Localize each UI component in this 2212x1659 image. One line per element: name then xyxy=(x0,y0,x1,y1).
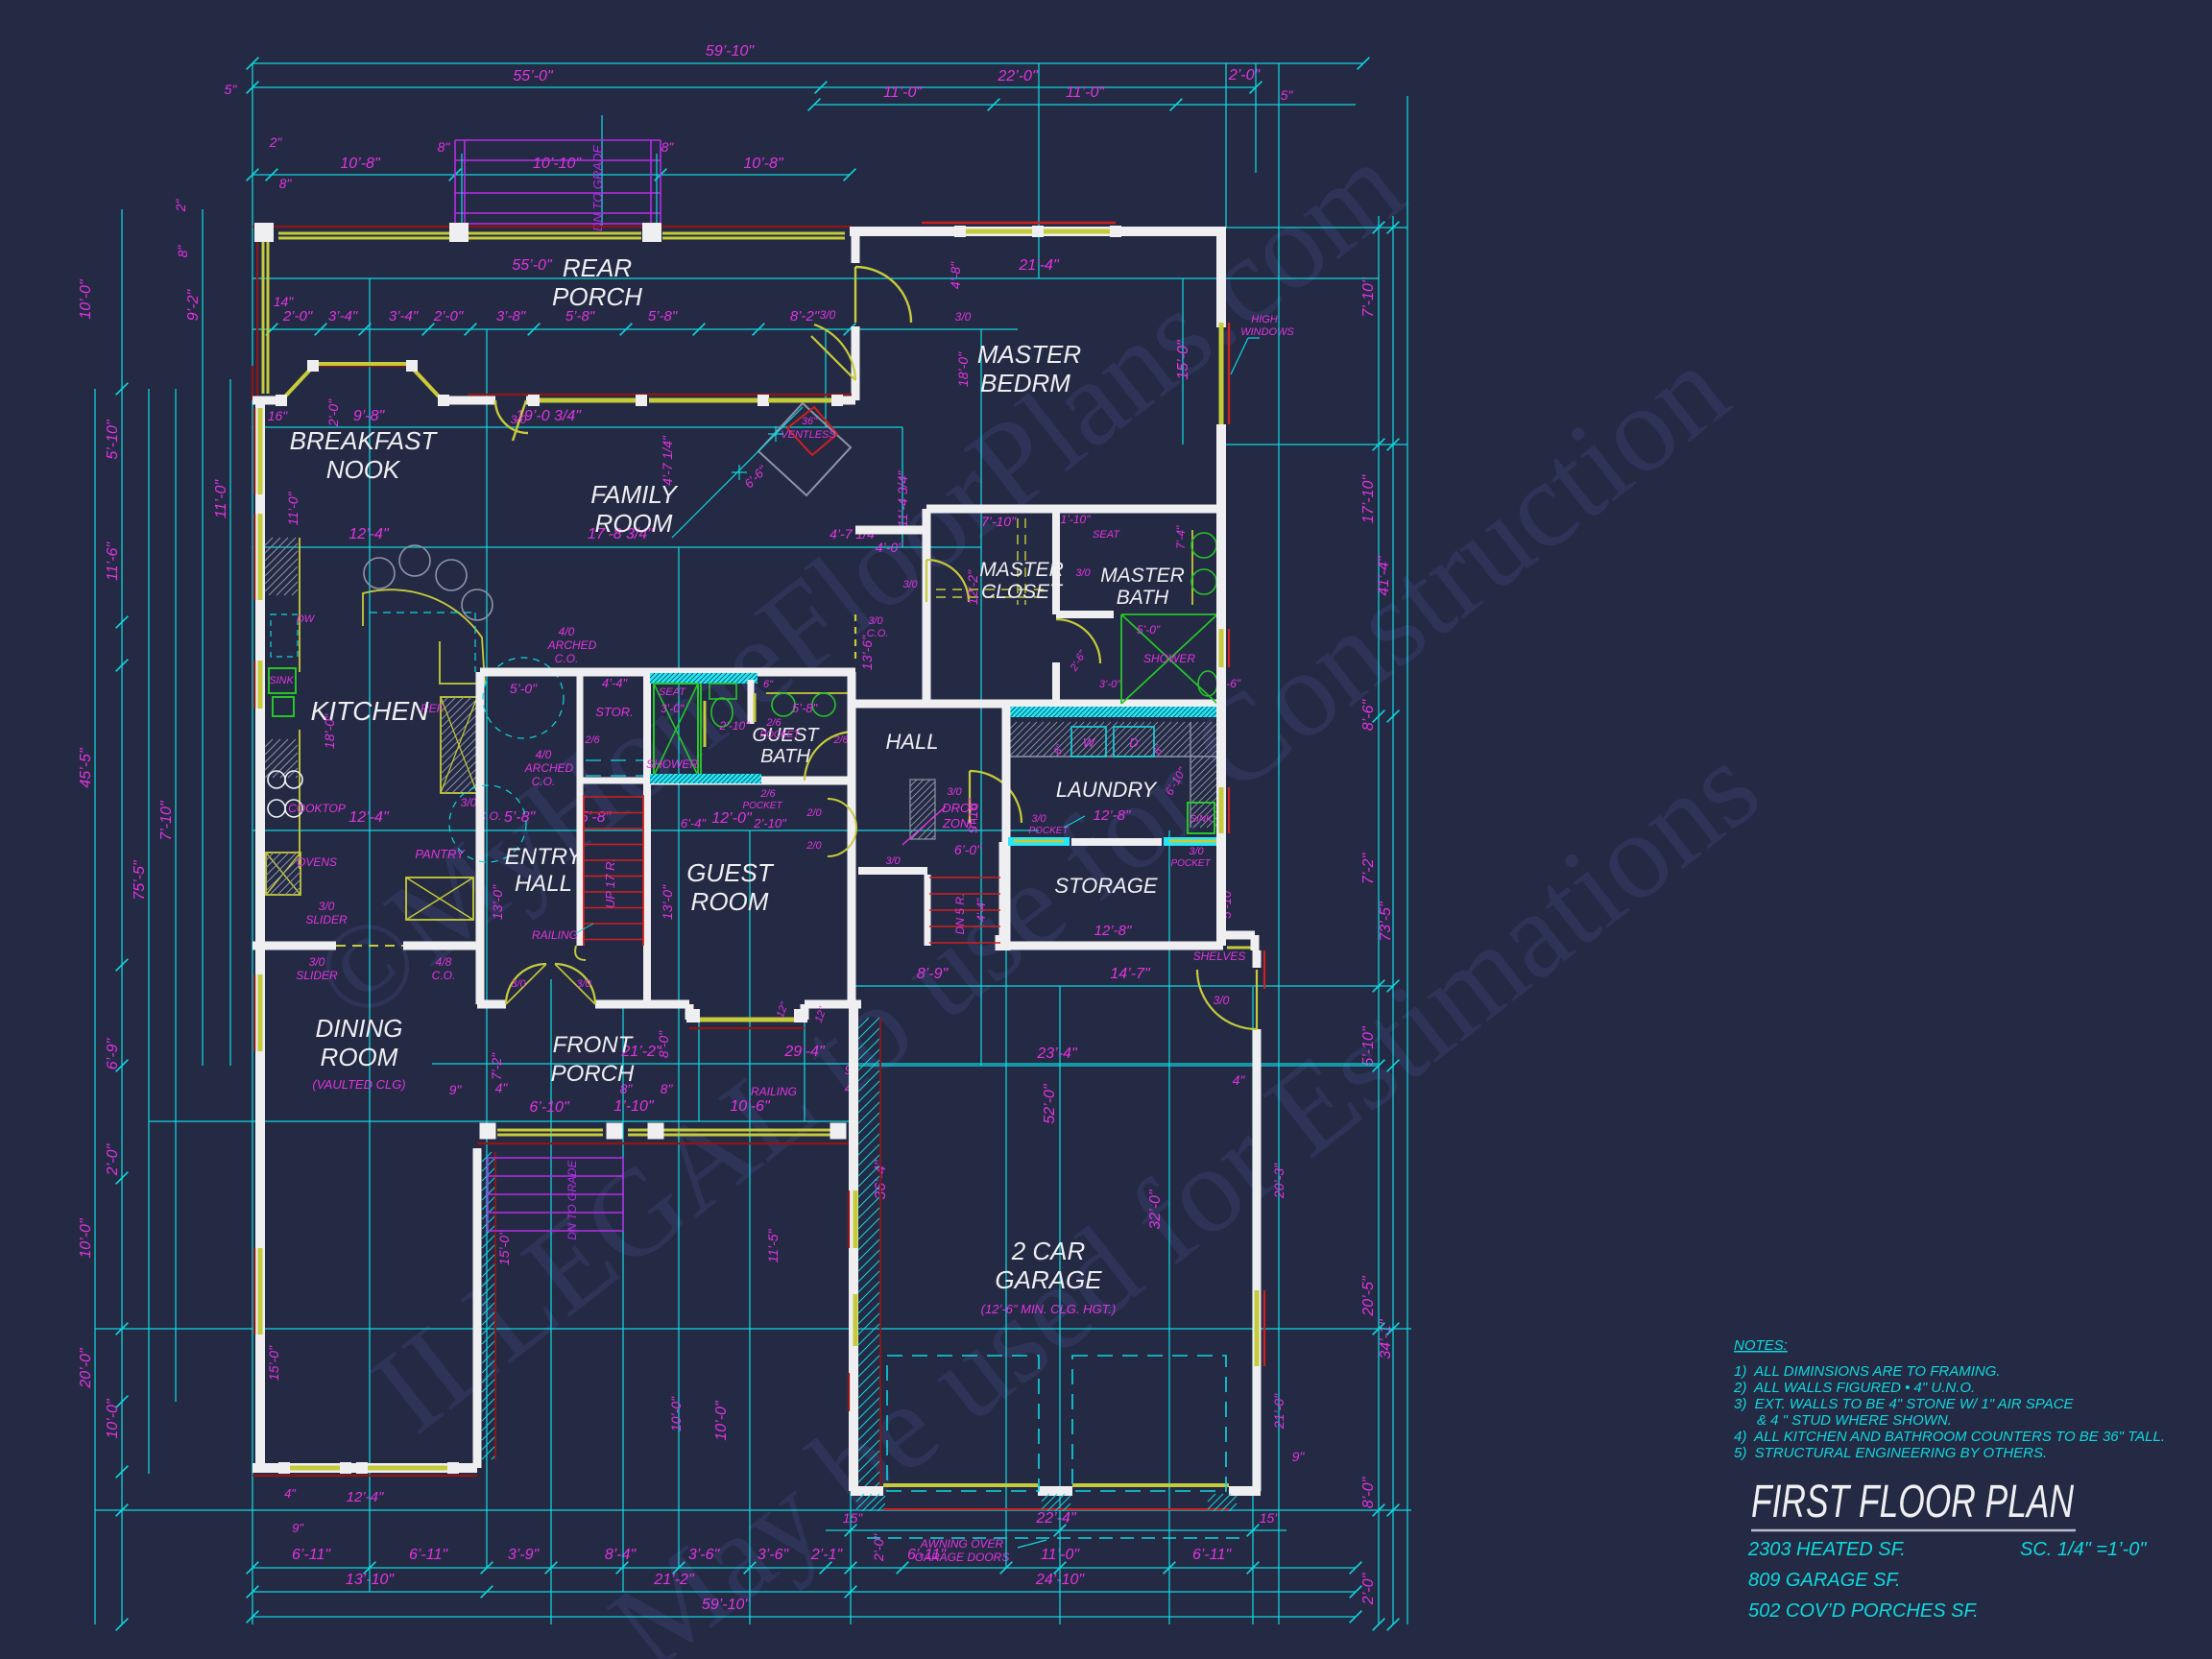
svg-text:PORCH: PORCH xyxy=(552,282,642,311)
svg-text:W: W xyxy=(1083,735,1096,750)
svg-text:DW: DW xyxy=(297,613,316,625)
svg-text:9": 9" xyxy=(1292,1449,1306,1464)
svg-text:MASTER: MASTER xyxy=(1100,565,1185,587)
svg-text:15’-0": 15’-0" xyxy=(266,1345,281,1381)
svg-text:12’-0": 12’-0" xyxy=(711,810,753,827)
svg-text:STOR.: STOR. xyxy=(595,705,634,719)
svg-text:4": 4" xyxy=(284,1486,297,1501)
svg-text:2303 HEATED SF.: 2303 HEATED SF. xyxy=(1747,1539,1906,1560)
svg-text:15": 15" xyxy=(1260,1510,1281,1526)
svg-text:15’-0": 15’-0" xyxy=(496,1230,512,1265)
svg-text:SHOWER: SHOWER xyxy=(646,757,698,771)
svg-text:BATH: BATH xyxy=(760,746,810,767)
svg-text:1) ALL DIMINSIONS ARE TO FRAM: 1) ALL DIMINSIONS ARE TO FRAMING. xyxy=(1734,1363,2001,1380)
svg-text:SEAT: SEAT xyxy=(659,686,686,698)
svg-text:SHELVES: SHELVES xyxy=(1193,950,1246,963)
svg-text:10’-0": 10’-0" xyxy=(78,1217,94,1259)
svg-text:UP 17 R.: UP 17 R. xyxy=(603,858,617,908)
svg-text:4/0: 4/0 xyxy=(559,625,575,638)
svg-text:5’-8": 5’-8" xyxy=(792,701,819,715)
svg-text:3’-0": 3’-0" xyxy=(1099,679,1121,690)
svg-text:2/0: 2/0 xyxy=(805,840,822,852)
svg-text:75’-5": 75’-5" xyxy=(132,859,148,901)
svg-text:6’-11": 6’-11" xyxy=(409,1547,448,1563)
svg-text:VENTLESS: VENTLESS xyxy=(781,429,836,441)
svg-text:2/6: 2/6 xyxy=(832,734,849,746)
svg-text:12’-8": 12’-8" xyxy=(1094,923,1132,939)
svg-text:12’-2": 12’-2" xyxy=(965,569,980,605)
svg-text:11’-0": 11’-0" xyxy=(1041,1547,1080,1563)
svg-text:10’-6": 10’-6" xyxy=(730,1098,771,1115)
svg-text:HIGH: HIGH xyxy=(1251,314,1278,325)
svg-text:20’-0": 20’-0" xyxy=(78,1347,94,1389)
svg-text:POCKET: POCKET xyxy=(1170,858,1211,869)
svg-text:45’-5": 45’-5" xyxy=(78,747,94,788)
svg-text:21’-0": 21’-0" xyxy=(1271,1393,1286,1430)
svg-text:4) ALL KITCHEN AND BATHROOM C: 4) ALL KITCHEN AND BATHROOM COUNTERS TO … xyxy=(1734,1429,2165,1445)
svg-text:2’-0": 2’-0" xyxy=(1360,1573,1377,1606)
svg-text:D: D xyxy=(1129,735,1138,750)
svg-text:22’-4": 22’-4" xyxy=(1035,1510,1077,1527)
svg-text:2’-0": 2’-0" xyxy=(325,398,341,427)
svg-text:10’-8": 10’-8" xyxy=(340,156,381,172)
svg-text:34’-1": 34’-1" xyxy=(1378,1318,1394,1359)
svg-text:6’-11": 6’-11" xyxy=(1192,1547,1232,1563)
svg-text:2’-0": 2’-0" xyxy=(433,308,464,325)
svg-text:2’-0": 2’-0" xyxy=(105,1143,121,1177)
svg-text:RAILING: RAILING xyxy=(751,1085,797,1098)
svg-text:11’-5": 11’-5" xyxy=(765,1228,781,1262)
svg-text:GARAGE: GARAGE xyxy=(995,1265,1102,1294)
svg-text:11’-6": 11’-6" xyxy=(105,541,121,581)
svg-text:59’-10": 59’-10" xyxy=(706,43,755,60)
svg-text:3/0: 3/0 xyxy=(1214,994,1230,1007)
svg-text:2’-10": 2’-10" xyxy=(719,719,751,733)
svg-text:11’-0": 11’-0" xyxy=(883,84,923,101)
svg-text:5’-0": 5’-0" xyxy=(1137,623,1161,637)
svg-text:10’-8": 10’-8" xyxy=(743,156,784,172)
svg-text:POCKET: POCKET xyxy=(742,801,782,811)
svg-text:12’-8": 12’-8" xyxy=(1094,807,1131,824)
svg-text:73’-5": 73’-5" xyxy=(1378,901,1394,942)
svg-text:5’-10": 5’-10" xyxy=(1360,1025,1377,1067)
svg-text:29’-4": 29’-4" xyxy=(783,1044,826,1060)
svg-text:11’-0": 11’-0" xyxy=(285,491,301,525)
svg-text:6’-0": 6’-0" xyxy=(954,842,982,857)
svg-text:18’-0": 18’-0" xyxy=(955,351,971,387)
svg-text:6’-4": 6’-4" xyxy=(681,816,708,830)
svg-text:8": 8" xyxy=(661,1081,674,1096)
svg-text:5’-8": 5’-8" xyxy=(648,308,678,325)
svg-text:3’-6": 3’-6" xyxy=(757,1547,790,1563)
svg-text:13’-10": 13’-10" xyxy=(346,1572,395,1588)
svg-text:SLIDER: SLIDER xyxy=(296,969,338,982)
svg-text:41’-4": 41’-4" xyxy=(1376,555,1392,596)
svg-text:12’-4": 12’-4" xyxy=(347,1489,384,1505)
svg-text:4’-4": 4’-4" xyxy=(602,676,629,690)
svg-text:FRONT: FRONT xyxy=(553,1032,635,1058)
svg-text:10’-0": 10’-0" xyxy=(78,278,94,320)
svg-text:MASTER: MASTER xyxy=(979,559,1064,581)
svg-text:WINDOWS: WINDOWS xyxy=(1240,326,1294,338)
svg-text:32’-0": 32’-0" xyxy=(1147,1189,1164,1230)
svg-text:6": 6" xyxy=(763,679,774,690)
svg-text:(12’-6" MIN. CLG. HGT.): (12’-6" MIN. CLG. HGT.) xyxy=(981,1302,1117,1316)
svg-text:BATH: BATH xyxy=(1117,587,1169,609)
svg-text:3/0: 3/0 xyxy=(1031,813,1046,825)
svg-text:16": 16" xyxy=(268,408,289,423)
svg-text:SC. 1/4" =1’-0": SC. 1/4" =1’-0" xyxy=(2020,1539,2147,1560)
svg-text:3/0: 3/0 xyxy=(1075,567,1091,579)
svg-text:6’-11": 6’-11" xyxy=(292,1547,331,1563)
svg-text:8": 8" xyxy=(279,176,293,191)
svg-text:C.O.: C.O. xyxy=(532,775,556,788)
svg-text:2": 2" xyxy=(269,134,283,150)
svg-text:3’-9": 3’-9" xyxy=(508,1547,541,1563)
svg-text:4’-0": 4’-0" xyxy=(876,540,903,555)
svg-text:3/0: 3/0 xyxy=(461,796,477,809)
svg-text:36": 36" xyxy=(802,416,818,427)
svg-text:3) EXT. WALLS TO BE 4" STONE: 3) EXT. WALLS TO BE 4" STONE W/ 1" AIR S… xyxy=(1734,1396,2075,1412)
svg-text:DN TO GRADE: DN TO GRADE xyxy=(590,145,605,231)
svg-text:8": 8" xyxy=(438,139,451,155)
svg-text:COOKTOP: COOKTOP xyxy=(288,802,346,815)
svg-text:2/0: 2/0 xyxy=(805,807,822,819)
svg-text:55’-0": 55’-0" xyxy=(512,257,553,274)
svg-text:2’-1": 2’-1" xyxy=(810,1547,844,1563)
svg-text:8": 8" xyxy=(661,139,675,155)
svg-text:14": 14" xyxy=(274,294,295,309)
svg-text:12’-4": 12’-4" xyxy=(349,526,390,542)
svg-text:C.O.: C.O. xyxy=(555,652,579,665)
svg-text:4": 4" xyxy=(1233,1072,1246,1088)
svg-text:FIRST FLOOR PLAN: FIRST FLOOR PLAN xyxy=(1751,1477,2074,1527)
svg-text:8’-0": 8’-0" xyxy=(656,1030,671,1058)
svg-text:1’-10": 1’-10" xyxy=(1061,513,1092,526)
svg-text:20’-3": 20’-3" xyxy=(1271,1163,1286,1199)
svg-text:21’-2": 21’-2" xyxy=(653,1572,695,1588)
svg-text:17’-10": 17’-10" xyxy=(1360,474,1377,523)
svg-text:23’-4": 23’-4" xyxy=(1036,1046,1078,1062)
svg-text:4": 4" xyxy=(495,1080,509,1095)
svg-text:SLIDER: SLIDER xyxy=(305,913,348,926)
svg-text:3’-0": 3’-0" xyxy=(661,702,685,715)
svg-text:GARAGE DOORS: GARAGE DOORS xyxy=(915,1551,1010,1564)
svg-text:9’-2": 9’-2" xyxy=(185,289,202,322)
svg-text:14’-7": 14’-7" xyxy=(1110,966,1151,982)
svg-text:3/0: 3/0 xyxy=(511,413,527,426)
svg-text:ARCHED: ARCHED xyxy=(524,761,574,775)
svg-text:RAILING: RAILING xyxy=(532,928,578,942)
svg-text:15’-0": 15’-0" xyxy=(1175,339,1191,380)
svg-text:HALL: HALL xyxy=(515,871,572,897)
svg-text:PORCH: PORCH xyxy=(551,1061,635,1087)
svg-text:REAR: REAR xyxy=(563,253,632,282)
svg-text:2/6: 2/6 xyxy=(765,717,781,729)
svg-text:5’-10": 5’-10" xyxy=(105,419,121,460)
svg-text:2) ALL WALLS FIGURED • 4" U.N: 2) ALL WALLS FIGURED • 4" U.N.O. xyxy=(1733,1380,1975,1396)
svg-text:5’-8": 5’-8" xyxy=(504,809,537,826)
svg-text:DN TO GRADE: DN TO GRADE xyxy=(565,1159,579,1239)
svg-text:18’-0": 18’-0" xyxy=(322,713,337,749)
svg-text:3/0: 3/0 xyxy=(885,855,901,867)
svg-text:SHOWER: SHOWER xyxy=(1143,652,1195,665)
svg-text:11’-4 3/4": 11’-4 3/4" xyxy=(895,470,910,527)
svg-text:8’-9": 8’-9" xyxy=(917,966,950,982)
svg-text:7’-2": 7’-2" xyxy=(1360,853,1377,885)
svg-text:10’-0": 10’-0" xyxy=(105,1398,121,1439)
svg-text:7’-2": 7’-2" xyxy=(489,1052,504,1080)
svg-text:10’-0": 10’-0" xyxy=(668,1396,684,1431)
svg-text:7’-10": 7’-10" xyxy=(1360,276,1377,318)
svg-text:MASTER: MASTER xyxy=(977,340,1081,369)
svg-text:59’-10": 59’-10" xyxy=(702,1597,751,1613)
svg-text:8": 8" xyxy=(175,245,190,258)
svg-text:4/8: 4/8 xyxy=(436,955,452,969)
svg-text:4’-8": 4’-8" xyxy=(948,261,963,289)
svg-text:3’-4": 3’-4" xyxy=(328,308,358,325)
svg-text:22’-0": 22’-0" xyxy=(997,68,1039,84)
svg-text:ROOM: ROOM xyxy=(321,1043,398,1071)
svg-text:11’-0": 11’-0" xyxy=(1066,84,1105,101)
svg-text:DINING: DINING xyxy=(316,1014,403,1043)
svg-text:11’-0": 11’-0" xyxy=(213,479,229,518)
svg-text:LAUNDRY: LAUNDRY xyxy=(1056,778,1158,802)
svg-text:4’-4": 4’-4" xyxy=(974,898,988,922)
svg-text:NOTES:: NOTES: xyxy=(1734,1337,1788,1354)
svg-text:HALL: HALL xyxy=(885,730,938,754)
svg-text:SINK: SINK xyxy=(1190,814,1214,825)
svg-text:C.O.: C.O. xyxy=(432,969,456,982)
svg-text:3/0: 3/0 xyxy=(902,579,918,590)
svg-text:10’-10": 10’-10" xyxy=(533,156,582,172)
svg-text:5) STRUCTURAL ENGINEERING BY: 5) STRUCTURAL ENGINEERING BY OTHERS. xyxy=(1734,1445,2047,1461)
svg-text:3’-6": 3’-6" xyxy=(688,1547,721,1563)
svg-text:5": 5" xyxy=(225,82,238,97)
svg-text:8’-4": 8’-4" xyxy=(605,1547,637,1563)
svg-text:ARCHED: ARCHED xyxy=(547,638,597,652)
svg-text:3/0: 3/0 xyxy=(319,900,335,913)
svg-text:FAMILY: FAMILY xyxy=(590,480,678,509)
svg-text:& 4 " STUD WHERE SHOWN.: & 4 " STUD WHERE SHOWN. xyxy=(1757,1412,1952,1429)
svg-text:3’-4": 3’-4" xyxy=(389,308,419,325)
svg-text:3/0: 3/0 xyxy=(576,978,591,990)
svg-text:DN 5 R.: DN 5 R. xyxy=(953,894,967,935)
svg-text:9’-8": 9’-8" xyxy=(353,408,386,424)
svg-text:POCKET: POCKET xyxy=(759,730,800,740)
svg-text:AWNING OVER: AWNING OVER xyxy=(920,1537,1004,1551)
svg-text:(VAULTED CLG): (VAULTED CLG) xyxy=(312,1077,405,1092)
svg-text:13’-6": 13’-6" xyxy=(859,635,875,670)
svg-text:5": 5" xyxy=(1281,87,1294,103)
svg-text:6’-10": 6’-10" xyxy=(529,1099,570,1116)
svg-text:ENTRY: ENTRY xyxy=(505,844,584,870)
svg-text:8’-2": 8’-2" xyxy=(790,308,820,325)
svg-text:BREAKFAST: BREAKFAST xyxy=(290,426,439,455)
svg-text:13’-0": 13’-0" xyxy=(660,884,675,920)
svg-text:7’-4": 7’-4" xyxy=(1174,525,1188,549)
svg-text:9’-10": 9’-10" xyxy=(965,798,980,833)
svg-text:8’-6": 8’-6" xyxy=(1360,699,1377,732)
svg-text:3/0: 3/0 xyxy=(820,308,836,322)
svg-text:3/0: 3/0 xyxy=(1189,846,1204,857)
svg-text:SINK: SINK xyxy=(269,675,294,686)
svg-text:POCKET: POCKET xyxy=(1028,826,1069,836)
svg-text:52’-0": 52’-0" xyxy=(1042,1083,1058,1124)
svg-text:OVENS: OVENS xyxy=(297,855,337,869)
svg-text:3/0: 3/0 xyxy=(947,786,962,798)
svg-text:3/0: 3/0 xyxy=(511,978,526,990)
svg-text:502 COV’D PORCHES SF.: 502 COV’D PORCHES SF. xyxy=(1748,1600,1979,1622)
svg-text:10’-0": 10’-0" xyxy=(713,1400,730,1441)
svg-text:3/0: 3/0 xyxy=(868,615,883,627)
svg-text:2’-10": 2’-10" xyxy=(753,816,787,830)
svg-text:9": 9" xyxy=(292,1521,304,1535)
svg-text:1’-10": 1’-10" xyxy=(613,1098,655,1115)
svg-text:5’-0": 5’-0" xyxy=(510,681,538,696)
svg-text:3’-8": 3’-8" xyxy=(496,308,526,325)
svg-text:8’-0": 8’-0" xyxy=(1360,1477,1377,1509)
svg-text:NOOK: NOOK xyxy=(326,455,401,484)
svg-text:GUEST: GUEST xyxy=(686,858,775,887)
svg-text:ROOM: ROOM xyxy=(595,509,673,538)
svg-text:7’-10": 7’-10" xyxy=(981,514,1017,529)
svg-text:13’-0": 13’-0" xyxy=(490,884,505,920)
svg-text:3/0: 3/0 xyxy=(309,955,325,969)
svg-text:2 CAR: 2 CAR xyxy=(1011,1237,1086,1265)
svg-text:20’-5": 20’-5" xyxy=(1360,1275,1377,1317)
svg-text:CLOSET: CLOSET xyxy=(981,581,1064,603)
svg-text:2/6: 2/6 xyxy=(759,788,776,800)
svg-text:BEDRM: BEDRM xyxy=(980,369,1070,397)
svg-text:809 GARAGE SF.: 809 GARAGE SF. xyxy=(1748,1570,1901,1591)
svg-text:12’-4": 12’-4" xyxy=(349,809,390,826)
svg-text:21’-4": 21’-4" xyxy=(1018,257,1060,274)
svg-text:2’-0": 2’-0" xyxy=(282,308,313,325)
svg-text:4’-7 1/4": 4’-7 1/4" xyxy=(660,435,675,486)
svg-text:6’-9": 6’-9" xyxy=(105,1038,121,1070)
svg-text:3/0: 3/0 xyxy=(955,310,972,324)
svg-text:2": 2" xyxy=(173,199,188,213)
svg-text:2/6: 2/6 xyxy=(584,734,600,746)
svg-text:15": 15" xyxy=(843,1510,864,1526)
svg-text:4/0: 4/0 xyxy=(536,748,552,761)
svg-text:7’-10": 7’-10" xyxy=(158,800,175,841)
svg-text:55’-0": 55’-0" xyxy=(513,68,554,84)
svg-text:ROOM: ROOM xyxy=(691,887,769,916)
svg-text:SEAT: SEAT xyxy=(1093,529,1120,541)
svg-text:STORAGE: STORAGE xyxy=(1054,874,1158,898)
svg-text:9": 9" xyxy=(449,1082,463,1097)
